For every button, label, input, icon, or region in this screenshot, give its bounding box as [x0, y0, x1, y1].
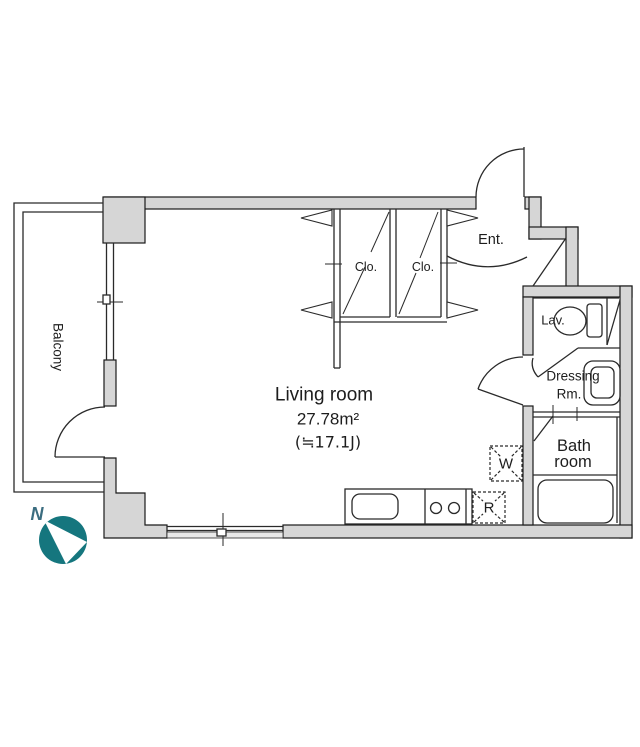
bottom-window: [167, 513, 283, 546]
wall-segment: [283, 525, 632, 538]
angled-wall-line: [533, 238, 566, 286]
refrigerator-space: R: [473, 492, 505, 523]
toilet-tank: [587, 304, 602, 337]
closet2-label: Clo.: [412, 260, 434, 274]
door-swing-arc: [55, 407, 105, 457]
dressing-door-leaf: [478, 389, 523, 405]
window-latch: [103, 295, 110, 304]
living-room-area-jo: (≒17.1J): [295, 433, 361, 452]
washer-space: W: [490, 446, 522, 481]
wall-segment: [523, 286, 632, 297]
wall-segment: [566, 227, 578, 287]
stove-burner: [449, 503, 460, 514]
refrigerator-label: R: [484, 500, 495, 517]
balcony-door: [55, 407, 105, 457]
washer-label: W: [499, 456, 514, 473]
balcony: Balcony: [14, 203, 104, 492]
compass: N: [31, 504, 88, 564]
living-room-area-sqm: 27.78m²: [297, 410, 360, 429]
closet-door-diagonal: [343, 267, 365, 314]
folding-door-arrow: [447, 302, 478, 318]
wall-segment: [104, 360, 116, 406]
compass-north-label: N: [31, 504, 45, 524]
closet-door-diagonal: [420, 212, 438, 258]
dressing-room-label-line2: Rm.: [557, 387, 582, 402]
folding-door-arrow: [447, 210, 478, 226]
closet1-label: Clo.: [355, 260, 377, 274]
stove-burner: [431, 503, 442, 514]
wall-segment: [104, 197, 476, 209]
bathroom: Bath room: [533, 405, 620, 523]
balcony-window: [97, 243, 123, 360]
dressing-room: Dressing Rm.: [478, 357, 620, 405]
kitchen: [345, 489, 472, 524]
balcony-label: Balcony: [51, 323, 66, 371]
kitchen-sink: [352, 494, 398, 519]
folding-door-arrow: [301, 210, 332, 226]
bath-door-leaf: [534, 416, 553, 441]
wall-segment: [620, 286, 632, 538]
living-room: Living room 27.78m² (≒17.1J): [275, 385, 373, 452]
closet-door-diagonal: [399, 273, 416, 314]
wall-segment: [523, 406, 533, 525]
bathroom-label-line2: room: [554, 453, 592, 471]
entrance-step-curve: [447, 256, 527, 267]
front-door-swing-arc: [476, 149, 524, 197]
closets: Clo. Clo.: [301, 209, 478, 368]
lavatory-label: Lav.: [541, 313, 565, 328]
wall-pillar-block: [103, 197, 145, 243]
dressing-door-arc: [478, 357, 523, 389]
window-latch: [217, 529, 226, 536]
wall-corner-block: [104, 458, 167, 538]
dressing-room-label-line1: Dressing: [546, 369, 599, 384]
closet-door-diagonal: [371, 212, 389, 252]
floor-plan-page: Balcony Ent.: [0, 0, 640, 747]
folding-door-arrow: [301, 302, 332, 318]
entrance-label: Ent.: [478, 232, 504, 248]
lavatory-door-arc: [532, 358, 538, 377]
living-room-label: Living room: [275, 385, 373, 406]
floor-plan-drawing: Balcony Ent.: [0, 0, 640, 747]
bathtub: [538, 480, 613, 523]
wall-segment: [523, 297, 533, 355]
